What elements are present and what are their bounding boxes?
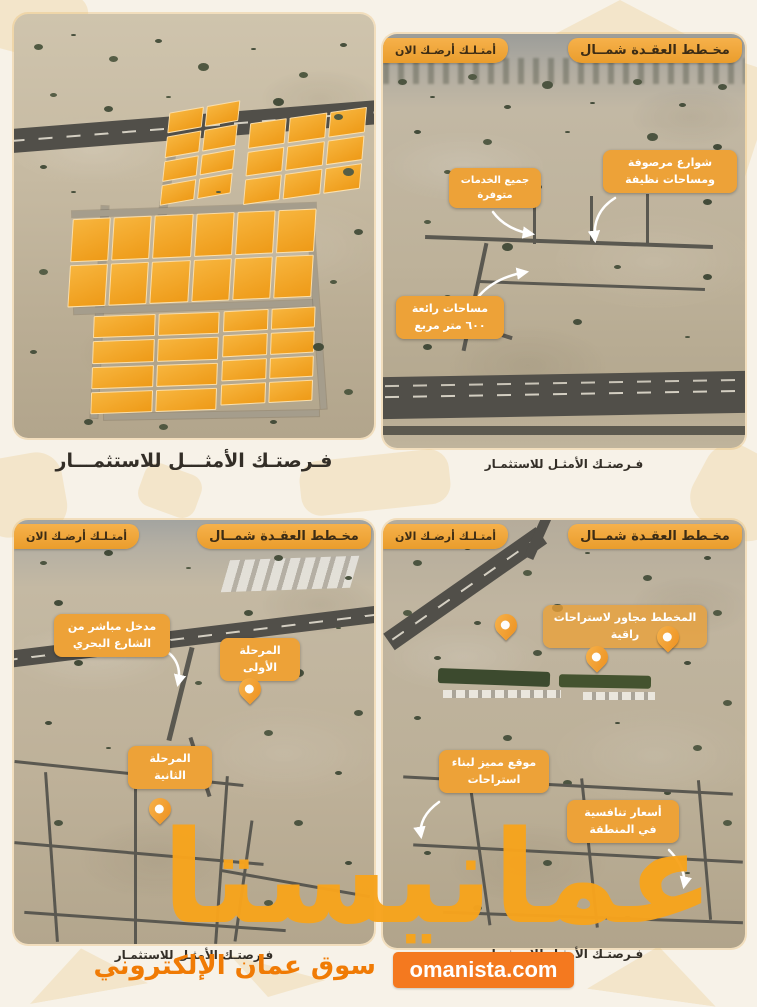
background-shape	[555, 0, 685, 34]
desert-bushes	[14, 14, 23, 20]
farm-strip	[559, 674, 651, 689]
tagline-text: سوق عمان الإلكتروني	[30, 951, 376, 981]
tag-plan-title: مخـطط العقـدة شمــال	[568, 524, 742, 549]
sand-texture	[383, 520, 745, 948]
annotation-direct-entrance: مدخل مباشر من الشارع البحري	[54, 614, 170, 657]
tag-own-land: أمتـلـك أرضـك الان	[383, 524, 508, 549]
resthouse-buildings	[443, 690, 561, 698]
highway	[383, 371, 745, 420]
plan-road	[646, 194, 649, 244]
tag-own-land: أمتـلـك أرضـك الان	[383, 38, 508, 63]
annotation-competitive-prices: أسعار تنافسية في المنطقة	[567, 800, 679, 843]
industrial-buildings	[221, 556, 360, 592]
website-button[interactable]: omanista.com	[393, 952, 574, 988]
resthouse-buildings	[583, 692, 655, 700]
panel-plots-overview	[14, 14, 374, 438]
annotation-plot-size: مساحات رائعة ٦٠٠ متر مربع	[396, 296, 504, 339]
plan-road	[590, 196, 593, 244]
plot-grid	[160, 100, 241, 206]
annotation-phase-two: المرحلة الثانية	[128, 746, 212, 789]
tag-plan-title: مخـطط العقـدة شمــال	[568, 38, 742, 63]
caption-investment: فـرصتـك الأمثـــل للاستثمـــار	[14, 450, 374, 472]
plot-grid	[220, 306, 315, 405]
panel-phases: مخـطط العقـدة شمــال أمتـلـك أرضـك الان …	[14, 520, 374, 944]
plot-road	[134, 770, 137, 944]
annotation-phase-one: المرحلة الأولى	[220, 638, 300, 681]
tag-plan-title: مخـطط العقـدة شمــال	[197, 524, 371, 549]
service-road	[383, 426, 745, 435]
annotation-adjacent-resthouses: المخطط مجاور لاستراحات راقية	[543, 605, 707, 648]
caption-investment: فـرصتـك الأمثـل للاستثمـار	[383, 457, 745, 471]
annotation-prime-location: موقع مميز لبناء استراحات	[439, 750, 549, 793]
panel-surroundings: مخـطط العقـدة شمــال أمتـلـك أرضـك الان …	[383, 520, 745, 948]
annotation-services: جميع الخدمات متوفرة	[449, 168, 541, 208]
panel-plan-streets: مخـطط العقـدة شمــال أمتـلـك أرضـك الان …	[383, 34, 745, 448]
annotation-paved-streets: شوارع مرصوفة ومساحات نظيفة	[603, 150, 737, 193]
plot-grid	[67, 209, 316, 308]
tag-own-land: أمتـلـك أرضـك الان	[14, 524, 139, 549]
plot-grid	[90, 312, 219, 415]
